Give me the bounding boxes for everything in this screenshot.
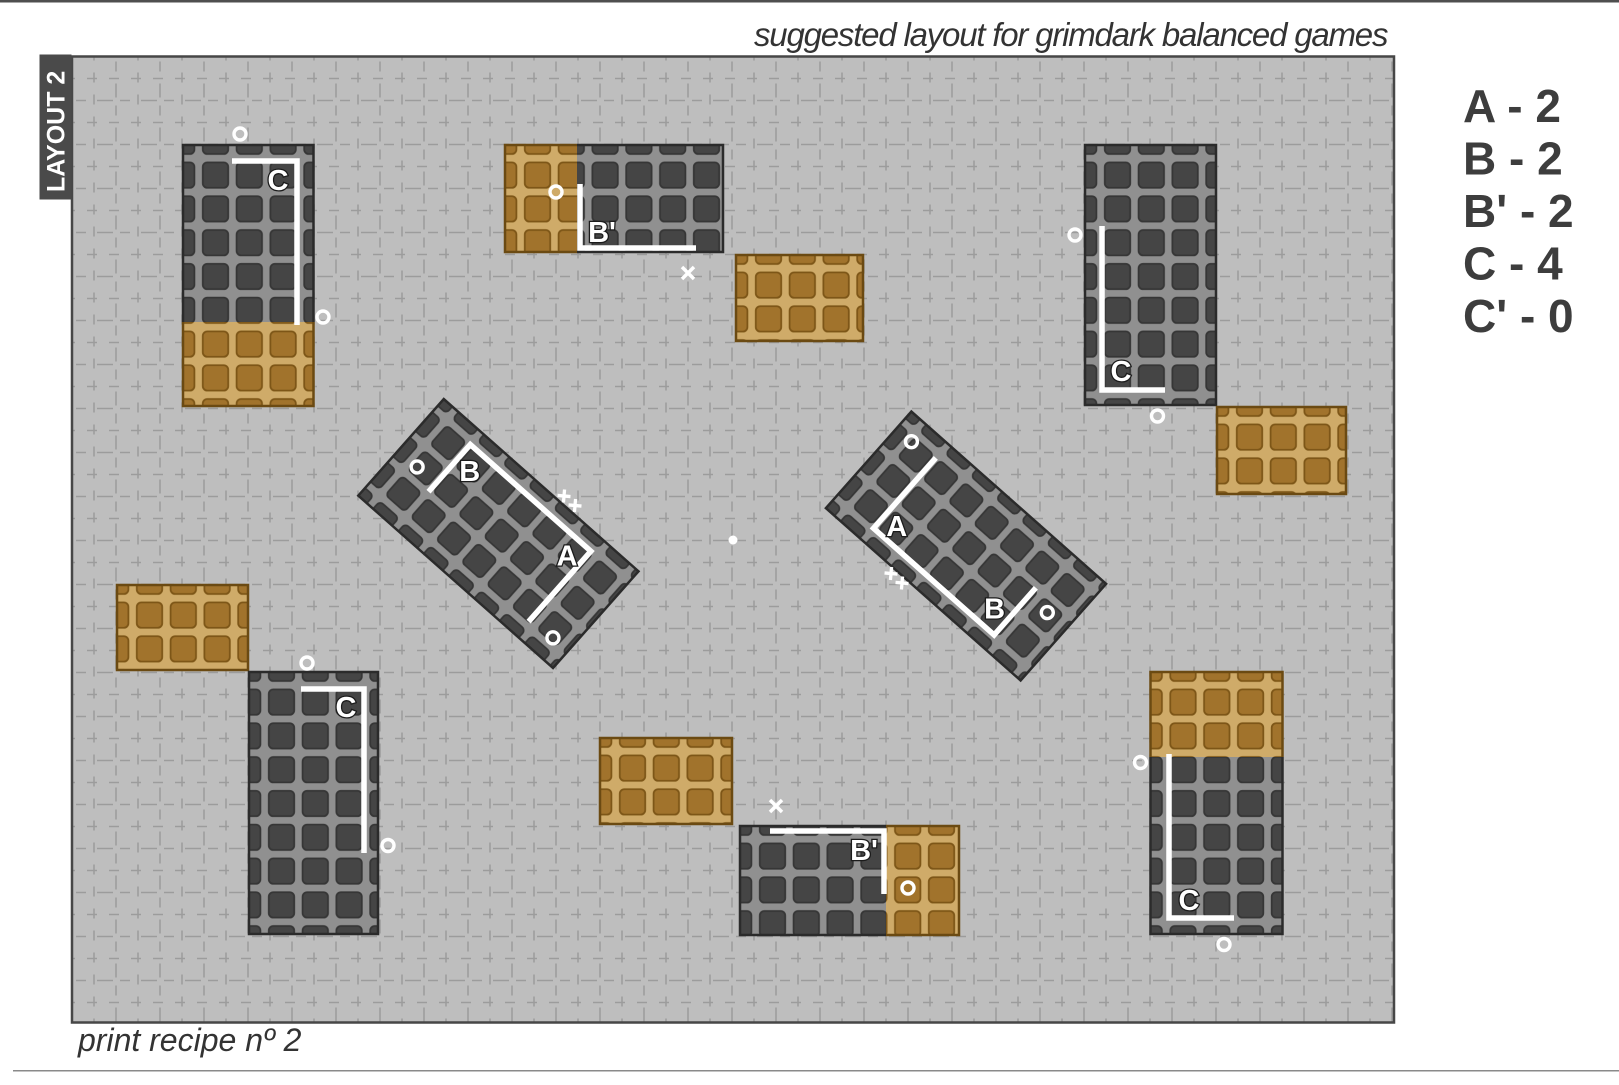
svg-text:B: B [459,456,480,488]
svg-text:C: C [336,692,357,724]
svg-text:B: B [984,594,1005,626]
svg-text:B': B' [588,217,616,249]
svg-text:LAYOUT 2: LAYOUT 2 [43,71,71,192]
svg-text:C: C [1179,885,1200,917]
svg-text:C: C [268,165,289,197]
svg-text:A - 2: A - 2 [1463,80,1561,132]
svg-text:C: C [1111,356,1132,388]
svg-text:suggested layout for grimdark: suggested layout for grimdark balanced g… [754,16,1388,53]
svg-text:B - 2: B - 2 [1463,133,1563,185]
svg-text:C' - 0: C' - 0 [1463,290,1574,342]
svg-text:A: A [557,541,578,573]
svg-text:C - 4: C - 4 [1463,238,1563,290]
svg-text:A: A [886,511,907,543]
svg-text:print recipe nº 2: print recipe nº 2 [77,1022,302,1058]
svg-text:B' - 2: B' - 2 [1463,185,1574,237]
svg-text:B': B' [850,835,878,867]
